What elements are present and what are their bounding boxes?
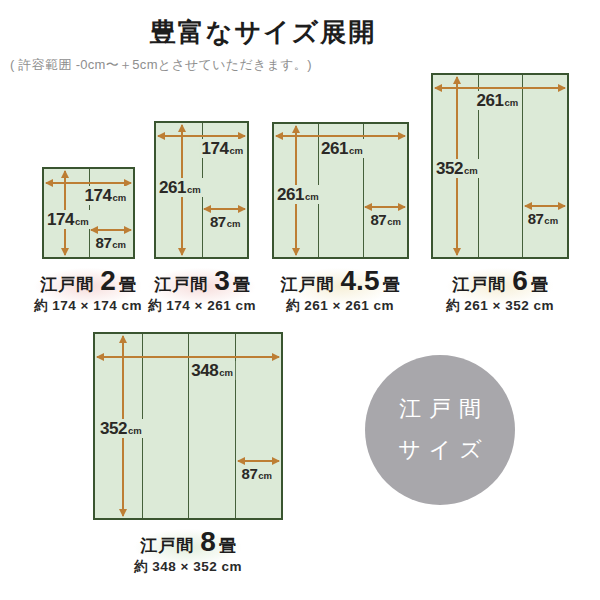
badge-line-2: サイズ	[390, 430, 490, 471]
height-dimension-label: 352cm	[434, 159, 480, 178]
width-arrow	[97, 356, 279, 358]
half-width-arrow	[204, 208, 245, 210]
width-dimension-label: 261cm	[319, 139, 365, 158]
tolerance-note: ( 許容範囲 -0cm〜＋5cmとさせていただきます。)	[10, 56, 312, 74]
half-width-arrow	[365, 206, 405, 208]
width-arrow	[158, 135, 245, 137]
width-dimension-label: 348cm	[189, 361, 235, 380]
half-width-dimension-label: 87cm	[208, 213, 242, 231]
badge-line-1: 江戸間	[391, 389, 489, 430]
edoma-size-badge: 江戸間 サイズ	[365, 355, 515, 505]
width-arrow	[435, 87, 565, 89]
half-width-arrow	[525, 205, 565, 207]
size-dimensions: 約 261 × 261 cm	[255, 299, 425, 313]
half-width-dimension-label: 87cm	[240, 465, 274, 483]
width-arrow	[46, 182, 131, 184]
width-dimension-label: 261cm	[475, 91, 521, 110]
height-dimension-label: 261cm	[275, 185, 321, 204]
mat-diagram-3jo: 174cm 261cm 87cm	[154, 121, 249, 259]
mat-diagram-8jo: 348cm 352cm 87cm	[93, 332, 283, 520]
caption-6jo: 江戸間6畳 約 261 × 352 cm	[415, 267, 585, 313]
mat-diagram-6jo: 261cm 352cm 87cm	[431, 73, 569, 259]
panel-divider	[522, 75, 523, 257]
size-name: 江戸間8畳	[103, 528, 273, 556]
size-name: 江戸間6畳	[415, 267, 585, 295]
width-dimension-label: 174cm	[83, 186, 129, 205]
half-width-arrow	[238, 460, 279, 462]
half-width-dimension-label: 87cm	[526, 210, 560, 228]
size-dimensions: 約 261 × 352 cm	[415, 299, 585, 313]
height-dimension-label: 352cm	[98, 419, 144, 438]
page-title: 豊富なサイズ展開	[150, 15, 376, 50]
half-width-dimension-label: 87cm	[94, 234, 128, 252]
width-dimension-label: 174cm	[200, 139, 246, 158]
caption-4-5jo: 江戸間4.5畳 約 261 × 261 cm	[255, 267, 425, 313]
caption-8jo: 江戸間8畳 約 348 × 352 cm	[103, 528, 273, 574]
height-dimension-label: 174cm	[45, 210, 91, 229]
half-width-dimension-label: 87cm	[369, 211, 403, 229]
half-width-arrow	[91, 229, 131, 231]
size-dimensions: 約 348 × 352 cm	[103, 560, 273, 574]
height-dimension-label: 261cm	[157, 178, 203, 197]
size-name: 江戸間4.5畳	[255, 267, 425, 295]
mat-diagram-2jo: 174cm 174cm 87cm	[42, 167, 135, 259]
mat-diagram-4-5jo: 261cm 261cm 87cm	[272, 122, 409, 259]
